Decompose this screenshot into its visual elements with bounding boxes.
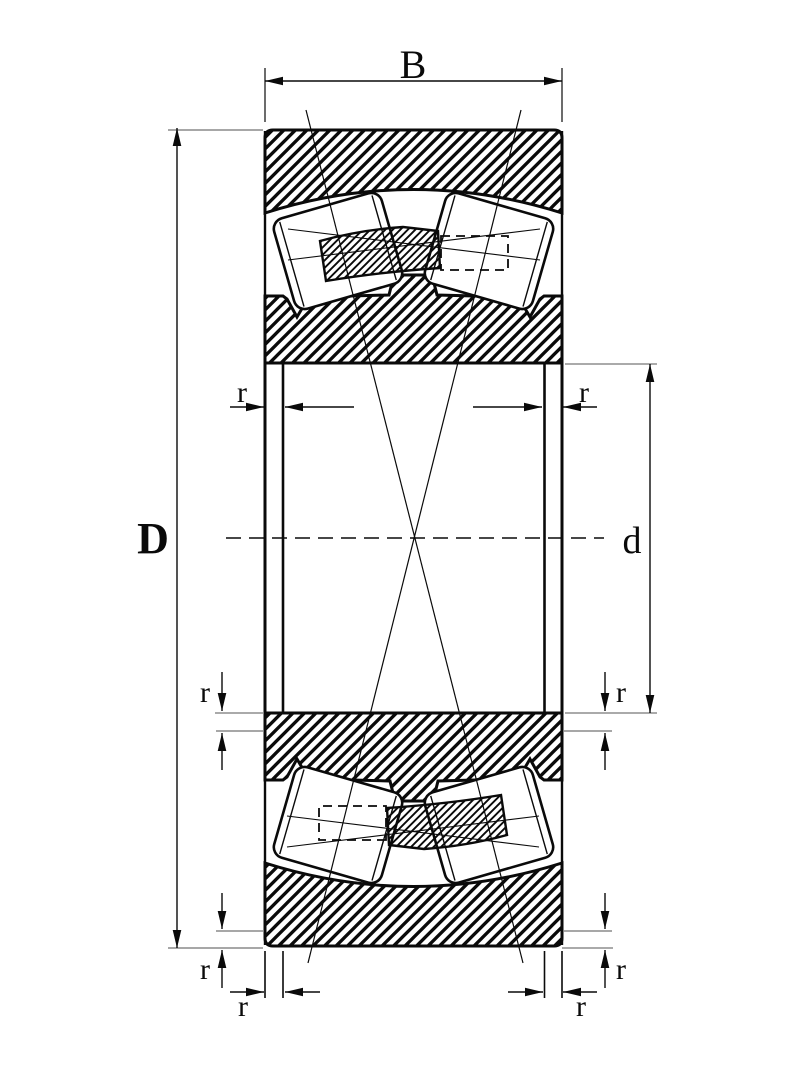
- dim-label-chamfer-r-bottom-right-horizontal: r: [576, 990, 586, 1023]
- dim-label-chamfer-r-top-right: r: [579, 376, 589, 409]
- roller-right: [422, 190, 556, 311]
- dim-label-chamfer-r-mid-right: r: [616, 676, 626, 709]
- bearing-bottom-section: [265, 713, 562, 946]
- dimension-lines: [177, 81, 650, 992]
- extension-lines: [168, 68, 657, 998]
- bearing-technical-drawing: B D d r r r r r r r r: [0, 0, 800, 1066]
- dim-label-outer-diameter-D: D: [137, 514, 169, 563]
- dim-label-bore-diameter-d: d: [623, 520, 642, 562]
- outer-ring-section: [265, 130, 562, 213]
- dim-label-chamfer-r-bottom-left-horizontal: r: [238, 990, 248, 1023]
- dim-label-chamfer-r-bottom-right-vertical: r: [616, 953, 626, 986]
- dim-label-width-B: B: [400, 42, 427, 87]
- dim-label-chamfer-r-mid-left: r: [200, 676, 210, 709]
- bearing-top-section: [265, 130, 562, 363]
- dim-label-chamfer-r-top-left: r: [237, 376, 247, 409]
- dim-label-chamfer-r-bottom-left-vertical: r: [200, 953, 210, 986]
- drawing-page: B D d r r r r r r r r: [0, 0, 800, 1066]
